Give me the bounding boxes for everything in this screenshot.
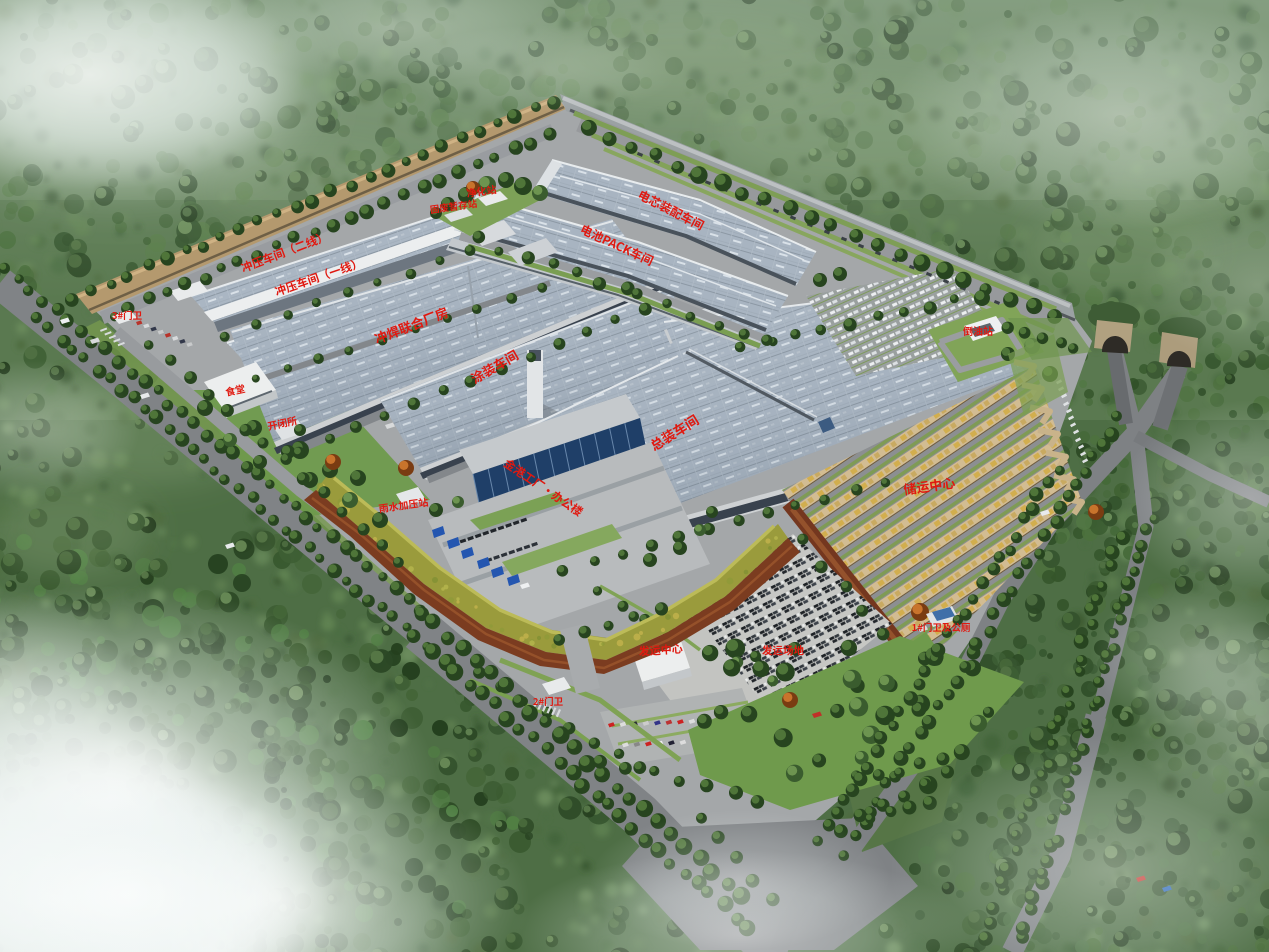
svg-text:倒油站: 倒油站: [963, 323, 993, 338]
svg-text:2#门卫: 2#门卫: [533, 694, 564, 708]
svg-text:3#门卫: 3#门卫: [112, 308, 143, 322]
svg-text:发运场地: 发运场地: [762, 643, 804, 658]
svg-text:1#门卫及公厕: 1#门卫及公厕: [912, 620, 971, 634]
svg-text:发运中心: 发运中心: [638, 640, 683, 659]
